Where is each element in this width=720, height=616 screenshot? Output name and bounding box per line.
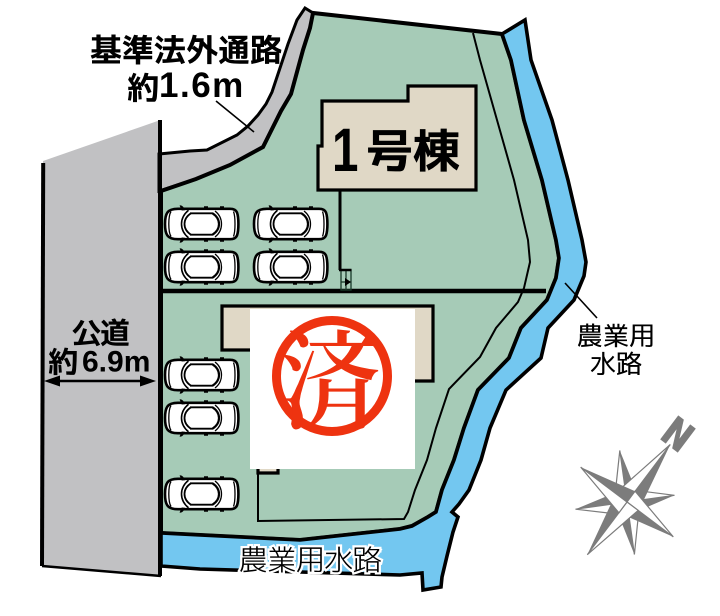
svg-text:6.9m: 6.9m (82, 346, 150, 379)
svg-text:1.6m: 1.6m (159, 66, 245, 105)
svg-text:1: 1 (332, 115, 358, 184)
